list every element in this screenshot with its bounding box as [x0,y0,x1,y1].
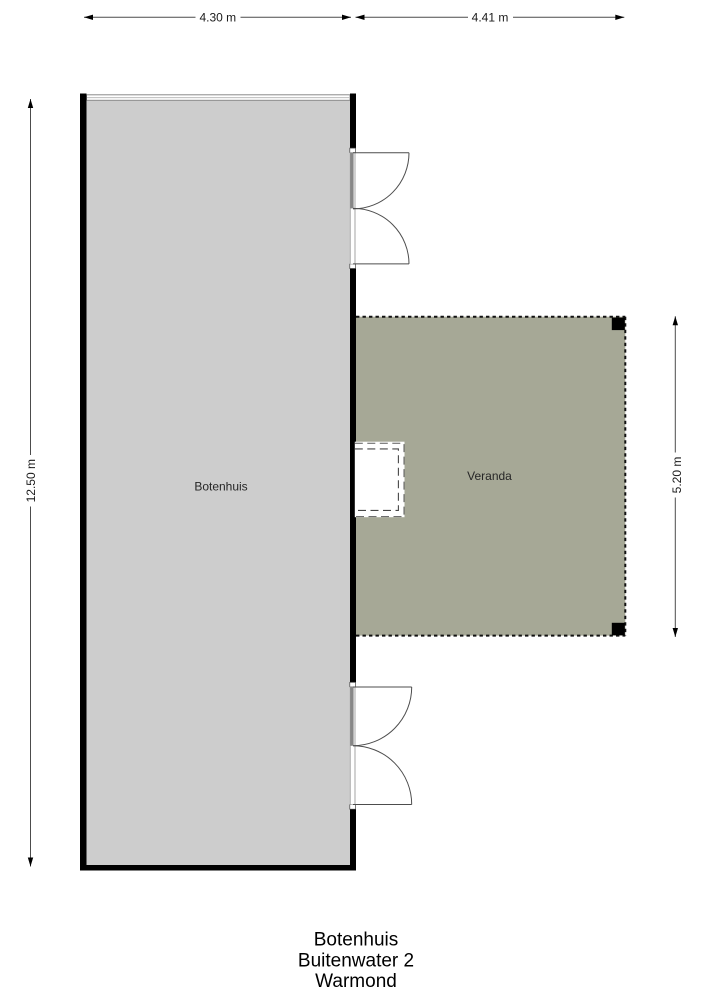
svg-text:4.30 m: 4.30 m [199,11,236,25]
svg-text:Botenhuis: Botenhuis [194,480,247,494]
svg-text:4.41 m: 4.41 m [472,11,509,25]
svg-text:Warmond: Warmond [315,971,397,992]
svg-text:5.20 m: 5.20 m [670,457,684,494]
svg-text:Veranda: Veranda [467,469,512,483]
svg-text:Botenhuis: Botenhuis [314,930,399,951]
svg-text:12.50 m: 12.50 m [24,459,38,502]
svg-text:Buitenwater 2: Buitenwater 2 [298,950,414,971]
